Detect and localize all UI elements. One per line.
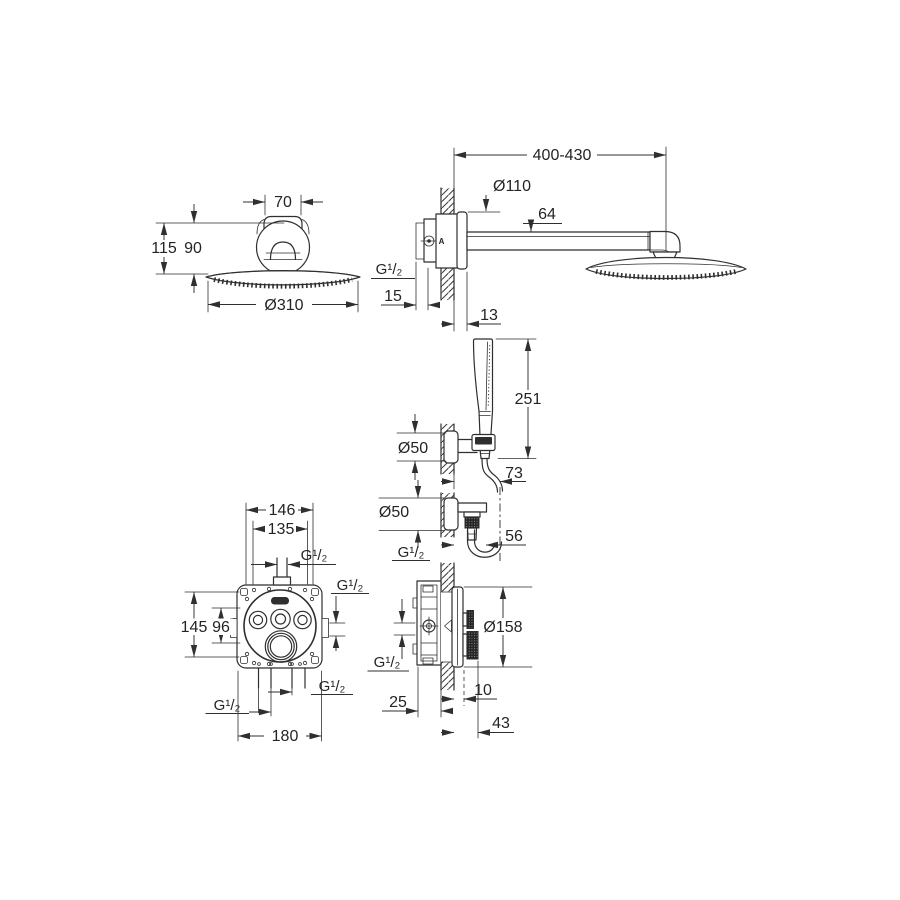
view-mixer-side: Ø158 10 25 43 — [368, 563, 533, 738]
label-158: Ø158 — [483, 619, 522, 636]
knob-knurl — [467, 632, 478, 660]
label-10: 10 — [474, 682, 492, 699]
label-43: 43 — [492, 715, 510, 732]
label-25: 25 — [389, 694, 407, 711]
label-110: Ø110 — [493, 178, 531, 195]
button-knurl — [467, 611, 474, 629]
label-310: Ø310 — [264, 297, 303, 314]
label-50-outlet: Ø50 — [379, 504, 409, 521]
arm-escutcheon — [457, 212, 467, 269]
dim-outlet-thread: G¹/₂ — [392, 544, 430, 561]
label-56: 56 — [505, 528, 523, 545]
dim-side-port-thread: G¹/₂ — [330, 577, 370, 651]
label-180: 180 — [272, 728, 299, 745]
side-port-right — [322, 619, 329, 638]
dim-plate-width: 180 — [238, 671, 322, 745]
dim-hole-spacing-h: 146 — [246, 502, 313, 585]
dim-head-diameter: Ø310 — [208, 281, 358, 314]
top-port — [274, 577, 291, 585]
label-251: 251 — [515, 391, 542, 408]
label-13: 13 — [480, 307, 498, 324]
label-90: 90 — [184, 240, 202, 257]
holder-wall-flange — [444, 431, 458, 463]
dim-outlet-diameter: Ø50 — [379, 480, 444, 548]
label-96: 96 — [212, 619, 230, 636]
label-70: 70 — [274, 194, 292, 211]
dim-holder-diameter: Ø50 — [397, 414, 446, 480]
outlet-elbow-body — [458, 503, 487, 512]
label-g12-bottom-left: G¹/₂ — [214, 697, 241, 714]
arm-elbow — [650, 232, 680, 253]
view-head-shower-side: A 400-430 Ø110 64 — [371, 147, 746, 332]
rough-in-housing-side — [413, 581, 454, 665]
label-73: 73 — [505, 465, 523, 482]
view-hand-shower: 251 Ø50 73 Ø50 56 — [379, 339, 545, 562]
dim-box-width: 135 — [253, 521, 308, 585]
label-145: 145 — [181, 619, 208, 636]
head-dome — [257, 221, 310, 274]
outlet-wall-flange — [444, 498, 458, 530]
label-union-marking: A — [439, 237, 445, 246]
label-135: 135 — [268, 521, 295, 538]
dim-top-port-thread: G¹/₂ — [251, 547, 336, 565]
label-400-430: 400-430 — [533, 147, 592, 164]
label-g12-right: G¹/₂ — [337, 577, 364, 594]
dim-inlet-thread: G¹/₂ — [371, 261, 415, 279]
dim-side-thread: G¹/₂ — [368, 599, 416, 671]
dim-handle-length: 251 — [496, 339, 545, 459]
label-15: 15 — [384, 288, 402, 305]
view-mixer-front: 146 135 G¹/₂ G¹/₂ — [180, 502, 369, 746]
shower-arm — [467, 232, 650, 250]
dim-arm-height: 64 — [523, 206, 562, 232]
label-64: 64 — [538, 206, 556, 223]
wall-union-bracket: A — [416, 212, 467, 269]
hose-nut-knurl — [465, 517, 479, 528]
label-g12-inlet: G¹/₂ — [376, 261, 403, 278]
label-g12-top: G¹/₂ — [301, 547, 328, 564]
label-146: 146 — [269, 502, 296, 519]
technical-drawing-page: 70 115 90 Ø310 — [0, 0, 900, 900]
label-115: 115 — [151, 240, 177, 257]
label-50-holder: Ø50 — [398, 440, 428, 457]
dim-bottom-right-thread: G¹/₂ — [268, 678, 353, 695]
dim-wall-plate-diameter: Ø110 — [468, 178, 531, 212]
shower-set-dimension-drawing: 70 115 90 Ø310 — [0, 0, 900, 900]
label-g12-bottom-right: G¹/₂ — [319, 678, 346, 695]
view-head-shower-front: 70 115 90 Ø310 — [149, 194, 360, 314]
indicator-slot — [271, 597, 289, 605]
label-g12-outlet: G¹/₂ — [398, 544, 425, 561]
dim-neck-width: 70 — [243, 194, 323, 215]
label-g12-side: G¹/₂ — [374, 654, 401, 671]
